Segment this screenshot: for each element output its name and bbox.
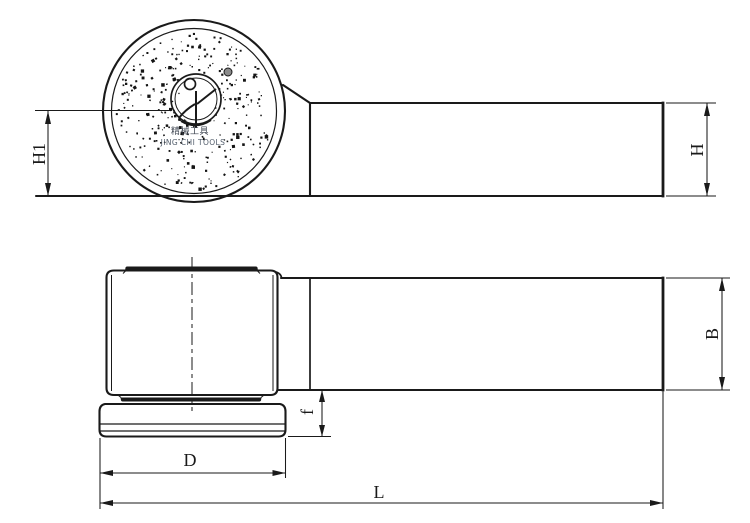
top-view-dimensions: H1 H <box>29 103 716 196</box>
f-arrow-down <box>319 425 325 437</box>
dim-label-h1: H1 <box>29 143 49 165</box>
brand-text-cn: 精械工具 <box>171 125 209 137</box>
d-arrow-right <box>273 470 286 476</box>
dim-label-l: L <box>374 482 385 502</box>
technical-drawing: 精械工具 JING CHI TOOLS H1 H <box>0 0 750 523</box>
h1-arrow-up <box>45 111 51 124</box>
neck-fillet-curve <box>283 85 310 103</box>
dim-label-h: H <box>687 144 707 157</box>
f-arrow-up <box>319 390 325 402</box>
d-arrow-left <box>100 470 113 476</box>
bottom-view <box>100 257 664 437</box>
logo-figure-head <box>185 79 196 90</box>
brand-text-en: JING CHI TOOLS <box>160 138 226 147</box>
bottom-cap-plate <box>121 398 262 402</box>
dim-label-d: D <box>184 450 197 470</box>
spindle-lock-dot <box>224 68 232 76</box>
dim-label-b: B <box>702 328 722 340</box>
logo-figure-arm-left <box>179 104 195 118</box>
l-arrow-left <box>100 500 113 506</box>
b-arrow-down <box>719 377 725 390</box>
stipple-dots <box>116 33 268 191</box>
h-arrow-up <box>704 103 710 116</box>
drawing-canvas: 精械工具 JING CHI TOOLS H1 H <box>0 0 750 523</box>
h1-arrow-down <box>45 183 51 196</box>
l-arrow-right <box>650 500 663 506</box>
b-arrow-up <box>719 278 725 291</box>
dim-label-f: f <box>297 409 317 415</box>
logo-figure-arm-right <box>197 89 216 104</box>
h-arrow-down <box>704 183 710 196</box>
